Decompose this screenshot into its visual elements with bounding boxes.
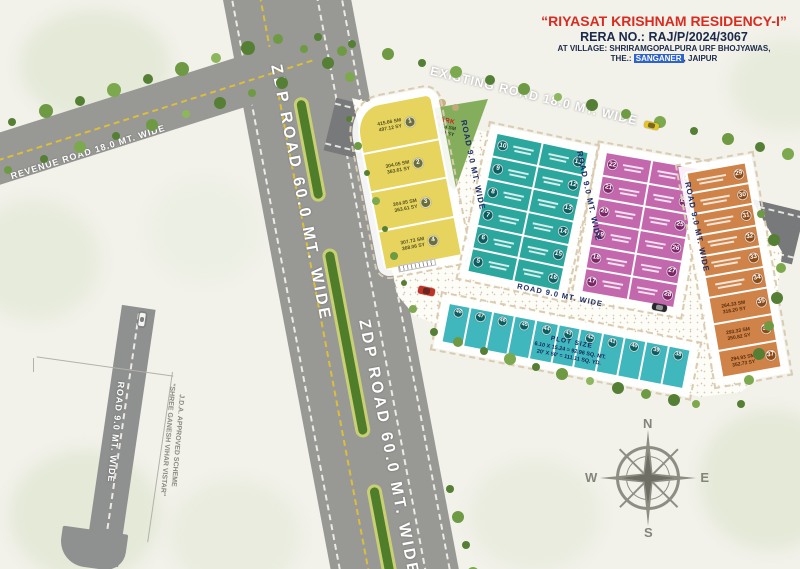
site-plan-canvas: PARK 262.53 SM 313.99 SY 415.66 SM497.12… bbox=[0, 0, 800, 569]
plot-number-badge: 32 bbox=[743, 231, 756, 244]
tree-cluster bbox=[4, 166, 12, 174]
plot-number-badge: 28 bbox=[661, 289, 674, 302]
plot-area-microtext bbox=[607, 232, 634, 244]
plot-area-microtext bbox=[485, 260, 512, 273]
plot-area-microtext bbox=[615, 186, 642, 198]
plot-area-microtext bbox=[619, 162, 646, 174]
project-title: “RIYASAT KRISHNAM RESIDENCY-I” bbox=[524, 13, 800, 30]
background-foliage bbox=[700, 410, 800, 550]
plot-number-badge: 31 bbox=[740, 210, 753, 223]
plot-area-microtext bbox=[692, 172, 730, 186]
tehsil-prefix: THE.: bbox=[611, 54, 634, 63]
plot-area-microtext bbox=[603, 256, 630, 268]
car-roof bbox=[656, 305, 663, 311]
plot-number-badge: 16 bbox=[547, 271, 560, 284]
plot-number-badge: 21 bbox=[602, 182, 615, 195]
plot-area-label: 304.05 SM363.61 SY bbox=[393, 198, 419, 214]
compass-rose: N S E W bbox=[588, 418, 708, 538]
plot-area-microtext bbox=[525, 244, 552, 257]
plot-number-badge: 27 bbox=[665, 265, 678, 278]
plot-number-badge: 29 bbox=[732, 168, 745, 181]
tree-cluster bbox=[446, 485, 454, 493]
plot-area-microtext bbox=[646, 215, 673, 227]
tehsil-highlight: SANGANER bbox=[634, 54, 684, 63]
plot-number-badge: 18 bbox=[590, 252, 603, 265]
plot-area-label: 304.05 SM363.61 SY bbox=[385, 159, 411, 175]
plot-number-badge: 1 bbox=[404, 115, 417, 128]
compass-w: W bbox=[585, 470, 597, 485]
plot-number-badge: 17 bbox=[585, 275, 598, 288]
tree-cluster bbox=[346, 116, 352, 122]
plot-area-microtext bbox=[642, 239, 669, 251]
plot-cell: 38 bbox=[662, 347, 689, 388]
plot-area-microtext bbox=[544, 151, 571, 164]
plot-number-badge: 22 bbox=[606, 159, 619, 172]
project-header: “RIYASAT KRISHNAM RESIDENCY-I” RERA NO.:… bbox=[524, 13, 800, 63]
plot-number-badge: 12 bbox=[566, 179, 579, 192]
plot-number-badge: 34 bbox=[751, 272, 764, 285]
tree-cluster bbox=[348, 40, 356, 48]
plot-area-microtext bbox=[696, 193, 734, 207]
compass-s: S bbox=[644, 525, 653, 540]
plot-number-badge: 6 bbox=[476, 232, 489, 245]
plot-number-badge: 15 bbox=[552, 248, 565, 261]
plot-number-badge: 14 bbox=[556, 225, 569, 238]
plot-number-badge: 36 bbox=[760, 322, 773, 335]
plot-area-microtext bbox=[707, 255, 745, 269]
plot-number-badge: 20 bbox=[598, 205, 611, 218]
car-taxi bbox=[643, 120, 659, 130]
plot-number-badge: 38 bbox=[672, 350, 684, 362]
plot-area-microtext bbox=[634, 285, 661, 297]
rera-number: RERA NO.: RAJ/P/2024/3067 bbox=[524, 30, 800, 45]
plot-area-microtext bbox=[530, 221, 557, 234]
background-foliage bbox=[0, 200, 100, 320]
plot-number-badge: 2 bbox=[412, 157, 425, 170]
tehsil-suffix: , JAIPUR bbox=[684, 54, 718, 63]
plot-number-badge: 8 bbox=[486, 186, 499, 199]
tree-cluster bbox=[8, 118, 16, 126]
car-roof bbox=[422, 288, 430, 295]
jda-scheme-note: J.D.A. APPROVED SCHEME "SHREE GANESH VIH… bbox=[157, 383, 186, 498]
plot-number-badge: 7 bbox=[481, 209, 494, 222]
plot-area-label: 294.93 SM352.73 SY bbox=[722, 351, 764, 370]
plot-area-label: 264.33 SM316.20 SY bbox=[713, 298, 755, 317]
plot-number-badge: 33 bbox=[747, 251, 760, 264]
plot-area-microtext bbox=[535, 198, 562, 211]
plot-area-label: 293.33 SM350.82 SY bbox=[717, 324, 759, 343]
tehsil-line: THE.: SANGANER, JAIPUR bbox=[524, 54, 800, 63]
tree-cluster bbox=[757, 210, 765, 218]
plot-area-microtext bbox=[504, 167, 531, 180]
plot-area-microtext bbox=[711, 276, 749, 290]
tree-cluster bbox=[430, 328, 438, 336]
compass-e: E bbox=[700, 470, 709, 485]
plot-area-microtext bbox=[650, 192, 677, 204]
plot-number-badge: 3 bbox=[419, 196, 432, 209]
plot-number-badge: 25 bbox=[673, 219, 686, 232]
plot-area-microtext bbox=[611, 209, 638, 221]
plot-area-microtext bbox=[539, 174, 566, 187]
address-line: AT VILLAGE: SHRIRAMGOPALPURA URF BHOJYAW… bbox=[524, 44, 800, 53]
plot-area-microtext bbox=[499, 190, 526, 203]
plot-area-label: 307.73 SM368.06 SY bbox=[400, 236, 426, 252]
plot-number-badge: 35 bbox=[755, 296, 768, 309]
park-tree bbox=[452, 104, 459, 111]
plot-area-microtext bbox=[509, 144, 536, 157]
plot-number-badge: 13 bbox=[561, 202, 574, 215]
compass-n: N bbox=[643, 416, 652, 431]
jda-boundary-line bbox=[37, 356, 174, 376]
plot-area-label: 415.66 SM497.12 SY bbox=[377, 117, 403, 133]
plot-number-badge: 30 bbox=[736, 189, 749, 202]
plot-number-badge: 37 bbox=[764, 349, 777, 362]
plot-area-microtext bbox=[638, 262, 665, 274]
plot-area-microtext bbox=[700, 214, 738, 228]
plot-area-microtext bbox=[520, 267, 547, 280]
car-roof bbox=[140, 316, 145, 322]
plot-area-microtext bbox=[704, 235, 742, 249]
park-tree bbox=[438, 99, 446, 107]
plot-area-microtext bbox=[655, 169, 682, 181]
plot-area-microtext bbox=[494, 213, 521, 226]
jda-boundary-tick bbox=[33, 358, 34, 372]
plot-number-badge: 5 bbox=[472, 255, 485, 268]
car-roof bbox=[648, 123, 655, 129]
background-foliage bbox=[150, 180, 260, 280]
tree-cluster bbox=[300, 45, 308, 53]
background-foliage bbox=[170, 480, 300, 569]
plot-area-microtext bbox=[489, 236, 516, 249]
plot-area-microtext bbox=[599, 279, 626, 291]
plot-number-badge: 4 bbox=[427, 234, 440, 247]
plot-number-badge: 9 bbox=[491, 163, 504, 176]
plot-number-badge: 10 bbox=[496, 140, 509, 153]
plot-number-badge: 48 bbox=[453, 307, 465, 319]
background-foliage bbox=[470, 460, 600, 569]
plot-number-badge: 26 bbox=[669, 242, 682, 255]
